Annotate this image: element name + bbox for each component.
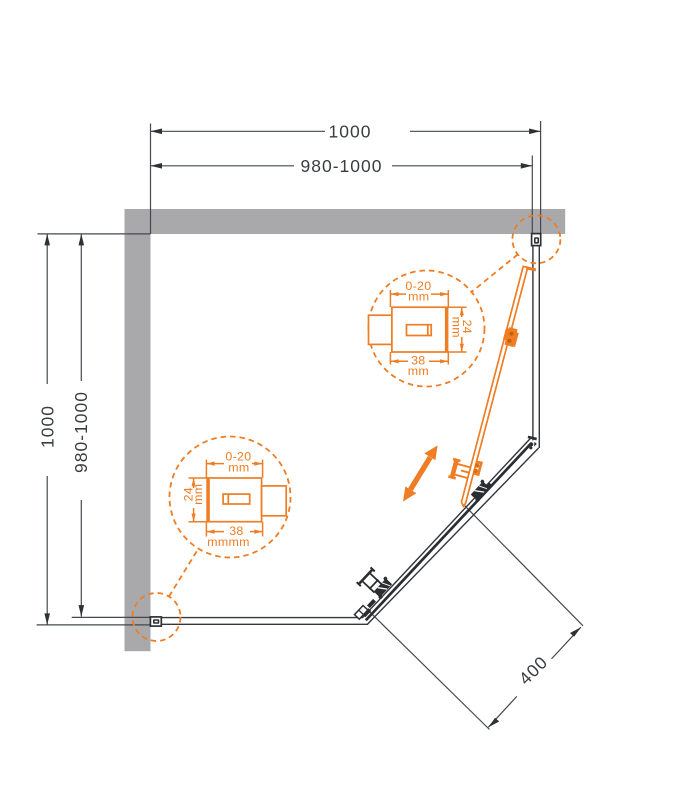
- svg-text:1000: 1000: [37, 405, 57, 448]
- svg-text:mm: mm: [450, 317, 464, 338]
- svg-text:mm: mm: [191, 484, 205, 505]
- svg-text:mm: mm: [228, 460, 249, 474]
- svg-text:980-1000: 980-1000: [71, 391, 91, 473]
- svg-text:1000: 1000: [329, 121, 372, 141]
- svg-text:mm: mm: [408, 290, 429, 304]
- svg-text:980-1000: 980-1000: [301, 156, 383, 176]
- svg-text:mmmm: mmmm: [207, 535, 250, 549]
- svg-text:mm: mm: [408, 364, 429, 378]
